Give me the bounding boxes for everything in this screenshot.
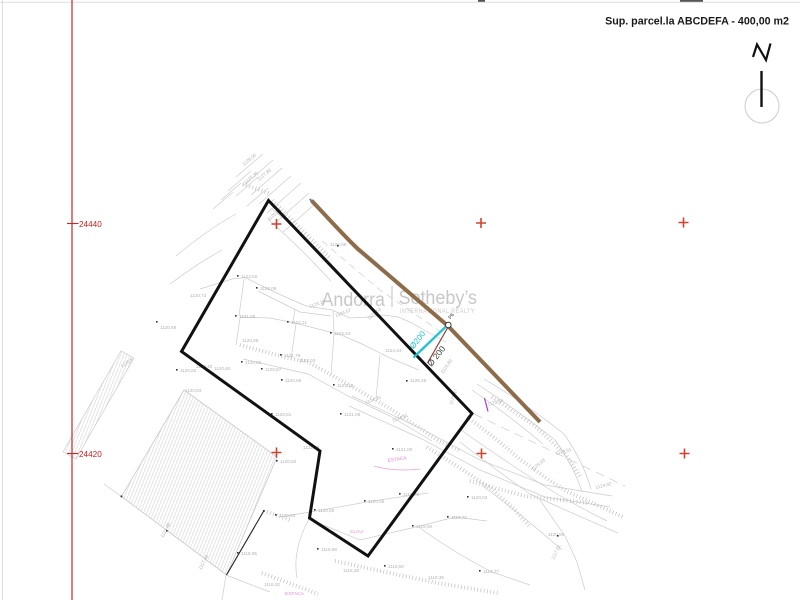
svg-text:INTERNATIONAL REALTY: INTERNATIONAL REALTY [400, 308, 475, 315]
svg-text:1118,95: 1118,95 [241, 551, 257, 556]
svg-text:24420: 24420 [79, 450, 102, 459]
svg-text:Sup. parcel.la ABCDEFA - 400,0: Sup. parcel.la ABCDEFA - 400,00 m2 [605, 16, 789, 28]
svg-text:1120,82: 1120,82 [280, 459, 297, 464]
svg-text:1120,73: 1120,73 [190, 293, 207, 298]
svg-text:1120,66: 1120,66 [285, 378, 302, 383]
svg-text:1122,03: 1122,03 [299, 358, 316, 363]
svg-text:1118,28: 1118,28 [343, 568, 359, 573]
svg-text:1118,50: 1118,50 [388, 564, 404, 569]
svg-text:1123,13: 1123,13 [337, 383, 354, 388]
svg-text:1120,62: 1120,62 [245, 360, 262, 365]
svg-text:1119,08: 1119,08 [416, 524, 432, 529]
svg-text:1120,82: 1120,82 [180, 368, 197, 373]
svg-text:1124,34: 1124,34 [385, 348, 402, 353]
svg-text:Sotheby’s: Sotheby’s [399, 287, 478, 309]
svg-text:1125,45: 1125,45 [410, 378, 427, 383]
svg-text:1118,02: 1118,02 [264, 582, 280, 587]
svg-text:CLAU: CLAU [350, 529, 363, 535]
svg-text:1118,36: 1118,36 [428, 575, 444, 580]
svg-text:1121,08: 1121,08 [239, 314, 256, 319]
svg-text:1122,11: 1122,11 [291, 320, 307, 325]
svg-text:1123,08: 1123,08 [260, 286, 277, 291]
svg-text:1120,83: 1120,83 [185, 388, 202, 393]
svg-text:1120,80: 1120,80 [318, 508, 335, 513]
svg-text:1120,81: 1120,81 [275, 412, 292, 417]
svg-text:1120,60: 1120,60 [214, 366, 231, 371]
svg-text:1120,05: 1120,05 [368, 499, 385, 504]
svg-text:1120,90: 1120,90 [548, 532, 565, 537]
svg-text:1121,00: 1121,00 [396, 447, 413, 452]
svg-text:ESTACA: ESTACA [285, 591, 305, 597]
svg-text:1118,70: 1118,70 [451, 515, 467, 520]
svg-text:1121,06: 1121,06 [344, 412, 361, 417]
svg-text:1120,87: 1120,87 [265, 367, 282, 372]
svg-text:1118,77: 1118,77 [483, 569, 499, 574]
svg-text:1118,98: 1118,98 [321, 547, 337, 552]
svg-text:1122,50: 1122,50 [241, 274, 258, 279]
svg-text:1123,24: 1123,24 [334, 331, 351, 336]
svg-text:1120,86: 1120,86 [242, 338, 259, 343]
svg-text:24440: 24440 [79, 220, 102, 229]
svg-text:1120,69: 1120,69 [160, 325, 177, 330]
svg-text:1120,04: 1120,04 [471, 495, 488, 500]
svg-text:1120,83: 1120,83 [279, 513, 296, 518]
